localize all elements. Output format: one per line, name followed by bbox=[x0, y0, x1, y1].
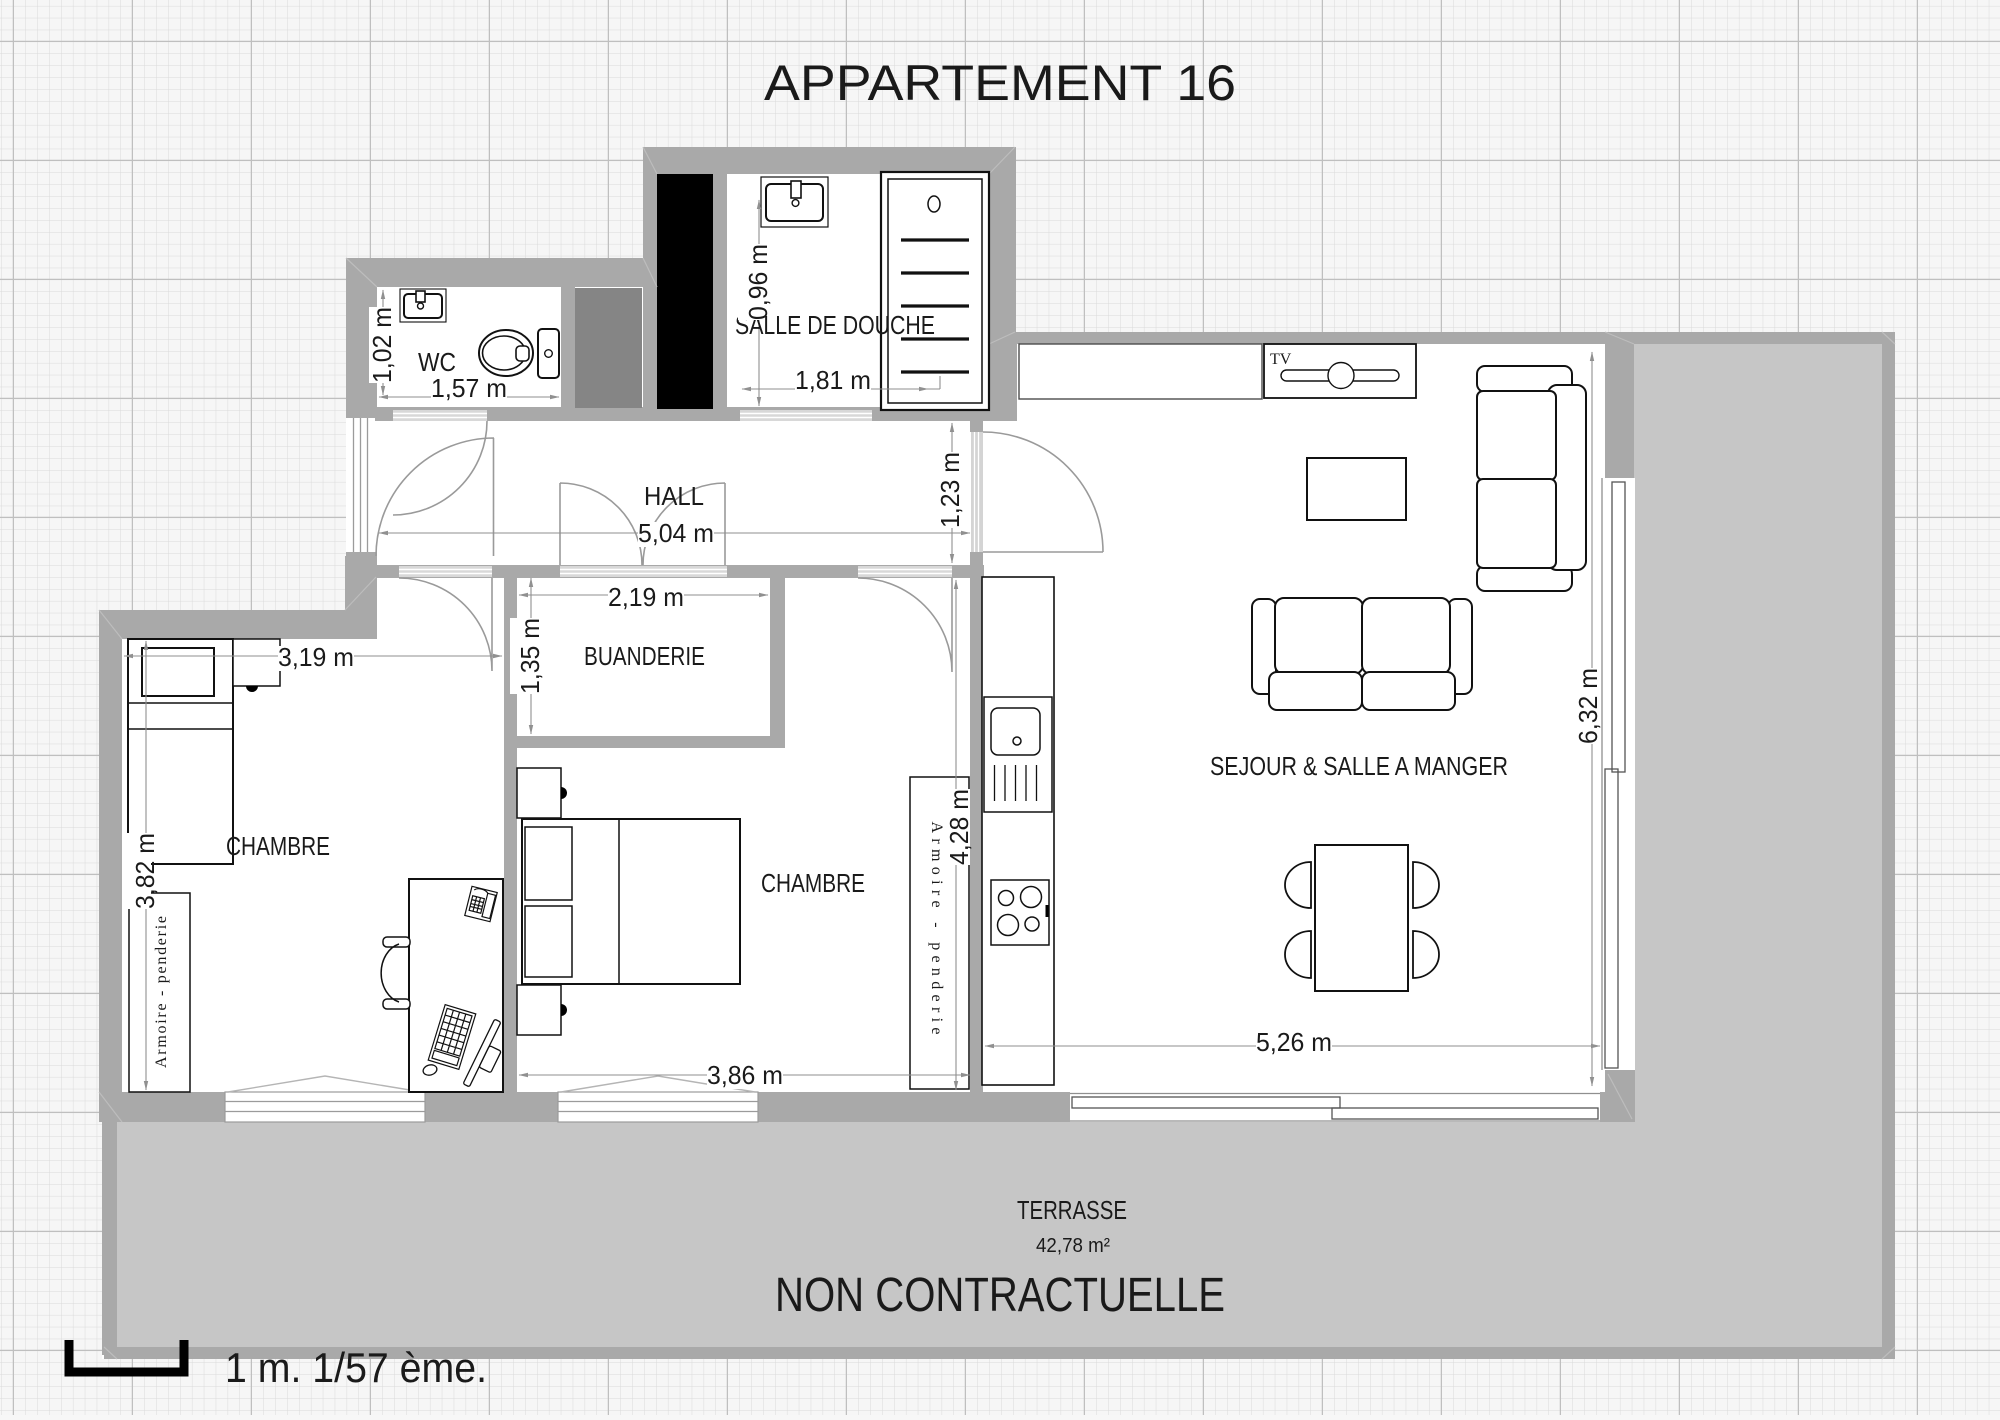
svg-text:1 m. 1/57 ème.: 1 m. 1/57 ème. bbox=[225, 1344, 487, 1391]
svg-text:CHAMBRE: CHAMBRE bbox=[226, 831, 330, 861]
svg-text:TERRASSE: TERRASSE bbox=[1017, 1195, 1127, 1225]
svg-text:3,82 m: 3,82 m bbox=[130, 833, 160, 909]
svg-text:3,86 m: 3,86 m bbox=[707, 1060, 783, 1090]
svg-text:5,04 m: 5,04 m bbox=[638, 518, 714, 548]
svg-text:1,23 m: 1,23 m bbox=[935, 452, 965, 528]
svg-text:1,57 m: 1,57 m bbox=[431, 373, 507, 403]
svg-text:CHAMBRE: CHAMBRE bbox=[761, 868, 865, 898]
svg-text:4,28 m: 4,28 m bbox=[944, 789, 974, 865]
svg-text:1,02 m: 1,02 m bbox=[367, 307, 397, 383]
svg-text:Armoire - penderie: Armoire - penderie bbox=[153, 916, 170, 1068]
svg-text:2,19 m: 2,19 m bbox=[608, 582, 684, 612]
svg-text:0,96 m: 0,96 m bbox=[743, 244, 773, 320]
svg-text:APPARTEMENT 16: APPARTEMENT 16 bbox=[764, 55, 1236, 111]
svg-text:1,81 m: 1,81 m bbox=[795, 365, 871, 395]
svg-text:NON CONTRACTUELLE: NON CONTRACTUELLE bbox=[775, 1269, 1225, 1322]
svg-text:BUANDERIE: BUANDERIE bbox=[584, 641, 705, 671]
svg-text:42,78 m²: 42,78 m² bbox=[1036, 1235, 1110, 1257]
svg-text:TV: TV bbox=[1270, 351, 1292, 368]
svg-text:3,19 m: 3,19 m bbox=[278, 642, 354, 672]
svg-text:6,32 m: 6,32 m bbox=[1573, 668, 1603, 744]
svg-text:SEJOUR & SALLE A MANGER: SEJOUR & SALLE A MANGER bbox=[1210, 751, 1508, 781]
svg-text:HALL: HALL bbox=[644, 481, 704, 511]
svg-text:5,26 m: 5,26 m bbox=[1256, 1027, 1332, 1057]
svg-text:1,35 m: 1,35 m bbox=[515, 618, 545, 694]
